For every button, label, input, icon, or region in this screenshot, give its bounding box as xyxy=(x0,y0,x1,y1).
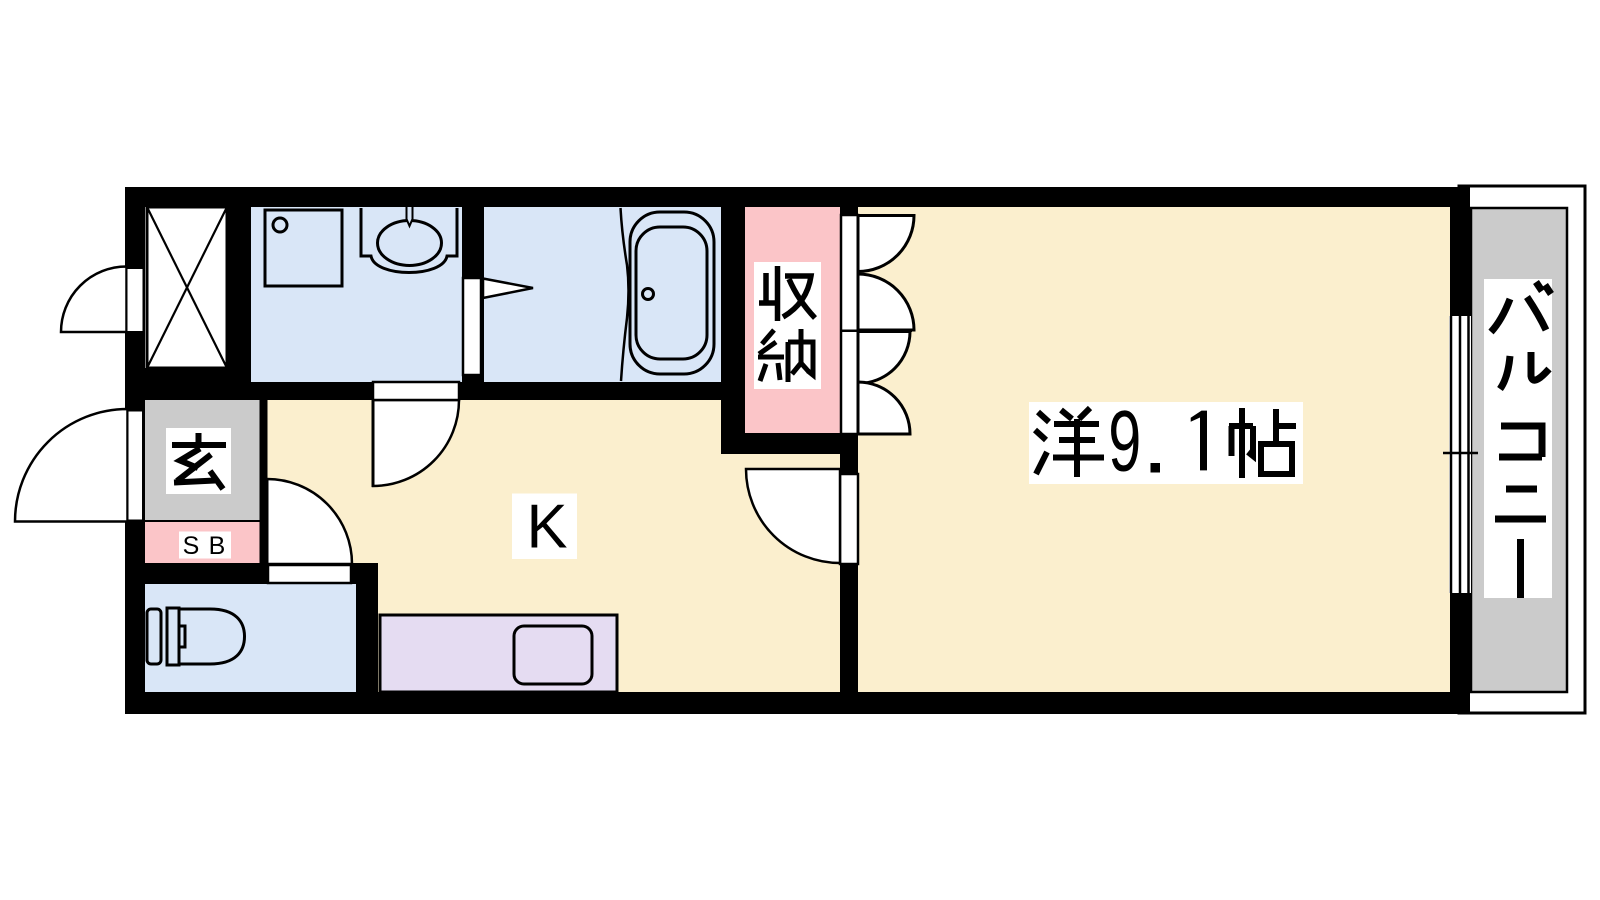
svg-text:B: B xyxy=(209,532,226,560)
svg-text:K: K xyxy=(527,493,568,562)
svg-text:S: S xyxy=(183,532,200,560)
svg-text:9: 9 xyxy=(1108,393,1141,489)
